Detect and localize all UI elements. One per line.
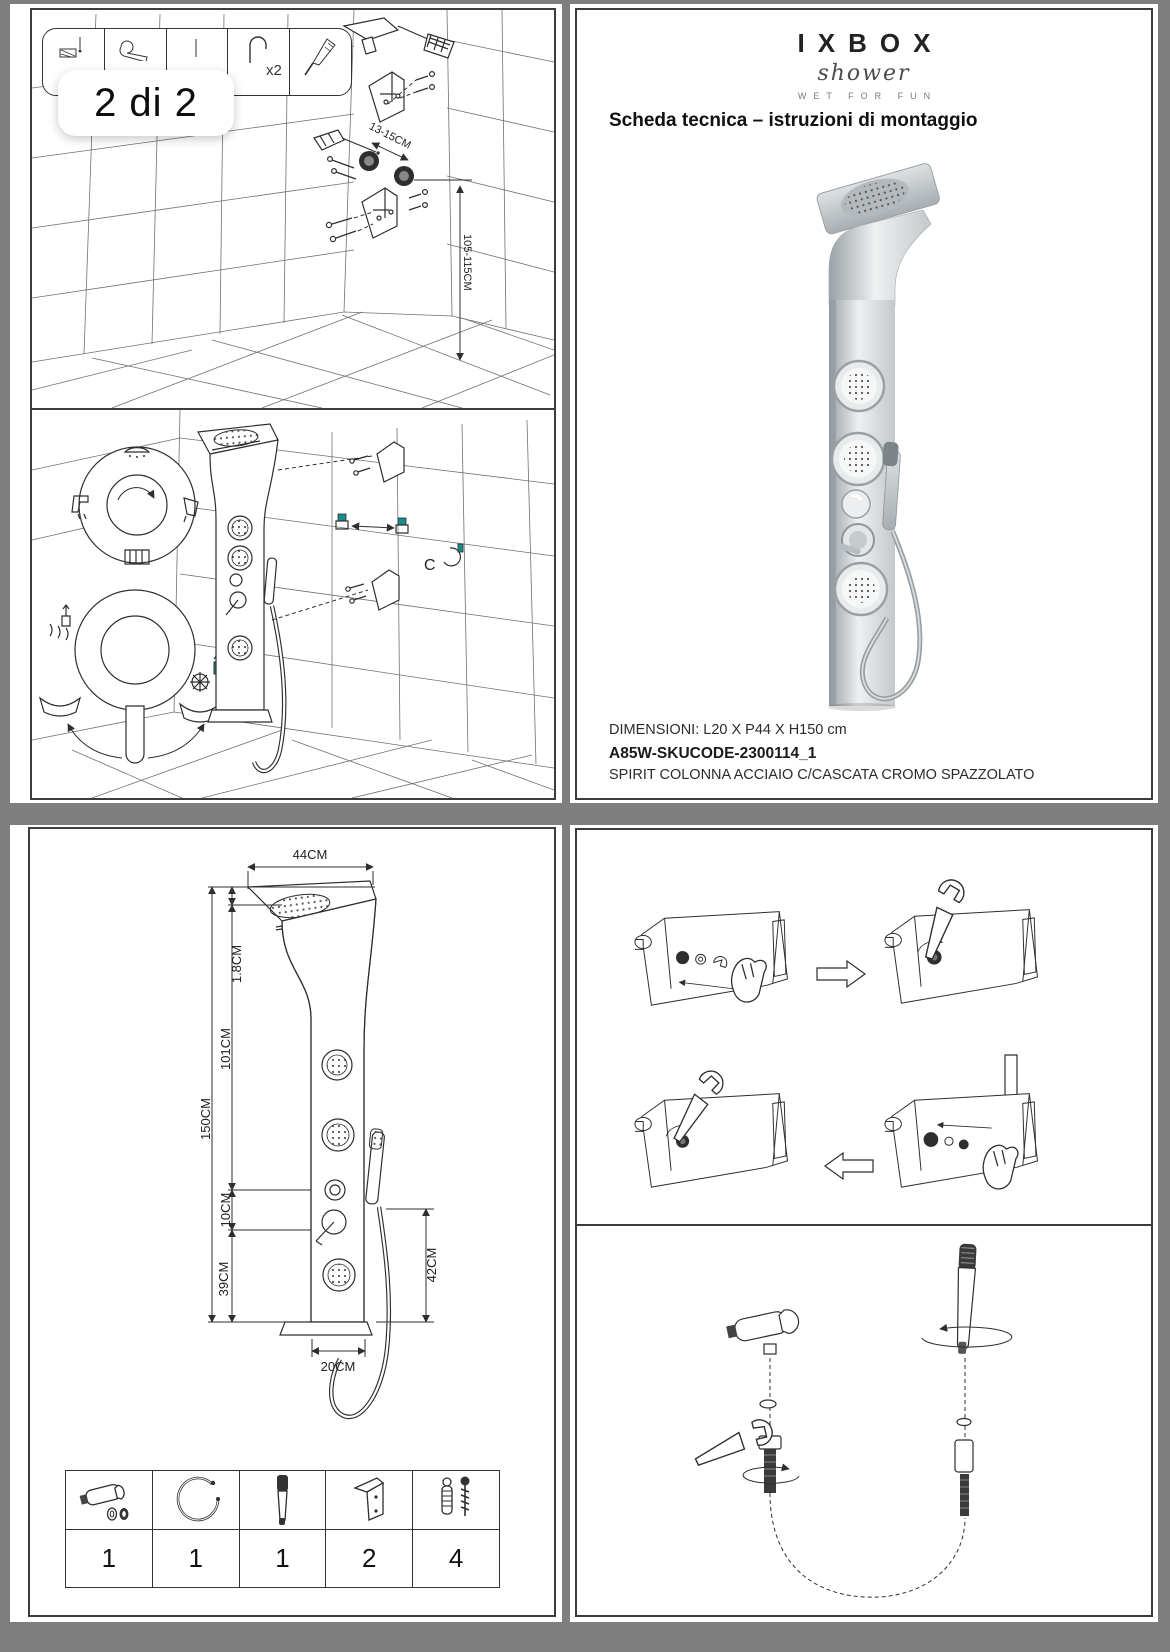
handshower-icon: [240, 1471, 327, 1529]
arrow-right-icon: [817, 961, 865, 987]
body-jet-1: [834, 361, 884, 411]
product-dimensions: DIMENSIONI: L20 X P44 X H150 cm: [609, 722, 847, 738]
c-clip-label: C: [424, 557, 436, 574]
sheet-title: Scheda tecnica – istruzioni di montaggio: [609, 110, 977, 132]
wrench-icon: [692, 1416, 777, 1475]
wall-bracket-lower: [326, 188, 427, 242]
mixer-knob-detail: [40, 590, 220, 763]
dim-upper-height: 101CM: [218, 1028, 233, 1070]
brand-logo: IXBOX: [590, 28, 1151, 59]
hose-routing-dashed: [770, 1493, 965, 1597]
panel-knob-details: C: [30, 408, 556, 800]
body-jet-2: [832, 433, 884, 485]
shower-column-drawing: [198, 424, 284, 771]
dim-body-width: 20CM: [321, 1359, 356, 1374]
holder-assembly: [692, 1308, 801, 1493]
step-1: [635, 912, 788, 1005]
wall-bracket-upper: [369, 72, 434, 122]
spacing-taps-icon: [336, 514, 408, 533]
hand-shower: [882, 442, 901, 531]
datasheet-page: 13-15CM 105-115CM: [0, 0, 1170, 1652]
product-sku: A85W-SKUCODE-2300114_1: [609, 745, 816, 763]
tool-cell-screwdriver: [290, 29, 351, 95]
part-qty: 1: [153, 1530, 240, 1588]
dimension-drawing: 44CM: [30, 829, 554, 1469]
step-3: [885, 1094, 1038, 1189]
panel-dimensional-drawing: 44CM: [28, 827, 556, 1617]
screws-anchors-icon: [413, 1471, 499, 1529]
brand-script: shower: [577, 61, 1151, 86]
dim-bracket-spacing-label: 13-15CM: [367, 120, 413, 151]
brand-block: IXBOX shower WET FOR FUN: [577, 28, 1151, 101]
diverter-knob: [842, 490, 870, 518]
drill-icon: [344, 18, 454, 58]
handshower-assembly: [577, 1226, 1151, 1615]
product-name: SPIRIT COLONNA ACCIAIO C/CASCATA CROMO S…: [609, 767, 1034, 783]
column-head: [816, 162, 943, 305]
part-qty: 1: [240, 1530, 327, 1588]
parts-qty-row: 1 1 1 2 4: [66, 1530, 499, 1588]
tool-quantity-label: x2: [266, 62, 282, 79]
dim-lower-height: 39CM: [216, 1262, 231, 1297]
part-qty: 2: [326, 1530, 413, 1588]
parts-icons-row: [66, 1471, 499, 1530]
brand-tagline: WET FOR FUN: [584, 91, 1151, 101]
wall-bracket-icon: [326, 1471, 413, 1529]
dim-hose-drop: 42CM: [424, 1248, 439, 1283]
bracket-mounting-steps: [577, 830, 1151, 1222]
page-indicator: 2 di 2: [58, 70, 234, 136]
water-outlets: [359, 151, 414, 186]
part-qty: 4: [413, 1530, 499, 1588]
step-4: [635, 1094, 788, 1187]
handshower-holder-icon: [66, 1471, 153, 1529]
hot-water-icon: [40, 605, 80, 716]
step-2: [885, 910, 1038, 1003]
part-qty: 1: [66, 1530, 153, 1588]
dim-mid-gap: 10CM: [218, 1193, 233, 1228]
shower-hose-icon: [153, 1471, 240, 1529]
knob-details-drawing: C: [32, 410, 554, 798]
handshower-assembly-right: [922, 1244, 1012, 1516]
body-jet-3: [835, 563, 887, 615]
dim-total-height: 150CM: [198, 1098, 213, 1140]
dim-width-top: 44CM: [293, 847, 328, 862]
panel-wall-installation: 13-15CM 105-115CM: [30, 8, 556, 410]
panel-product-sheet: IXBOX shower WET FOR FUN Scheda tecnica …: [575, 8, 1153, 800]
product-photo: [727, 150, 1047, 725]
column-outline: [248, 881, 376, 1335]
parts-table: 1 1 1 2 4: [65, 1470, 500, 1588]
dim-outlet-height-label: 105-115CM: [461, 234, 473, 291]
panel-mounting-steps: [575, 828, 1153, 1617]
arrow-left-icon: [825, 1153, 873, 1179]
dim-head-thickness: 1.8CM: [229, 945, 244, 983]
c-clip-icon: [444, 544, 463, 566]
diverter-knob-detail: [72, 447, 198, 564]
